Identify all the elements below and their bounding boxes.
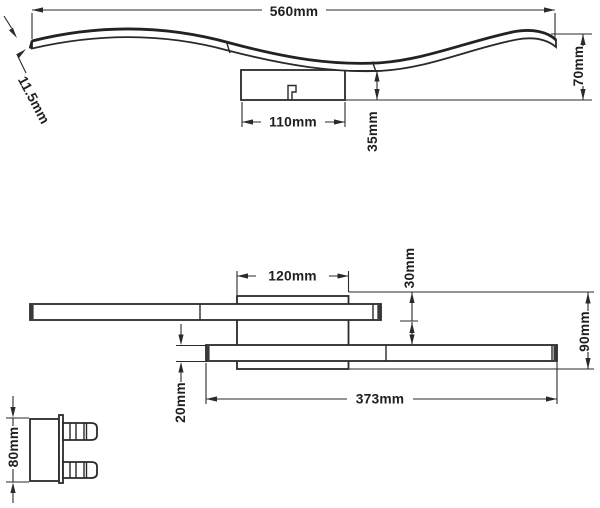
linear-front-view: 120mm 30mm 90mm	[30, 248, 594, 423]
dim-label-560mm: 560mm	[270, 4, 319, 19]
upper-bar	[30, 304, 381, 320]
dim-label-11-5mm: 11.5mm	[15, 74, 53, 127]
upper-bar-right-endcap	[377, 305, 380, 319]
bracket-body	[30, 419, 59, 481]
dim-label-35mm: 35mm	[365, 111, 380, 152]
dim-bar-thickness: 20mm	[173, 324, 207, 423]
lower-bar-right-endcap	[554, 346, 557, 360]
dim-label-80mm: 80mm	[6, 427, 21, 468]
dim-label-30mm: 30mm	[402, 248, 417, 289]
dim-canopy-width: 110mm	[242, 102, 345, 130]
technical-drawing-sheet: 560mm 11.5mm 110mm 35mm	[0, 0, 600, 508]
bracket-lower-clip	[63, 462, 97, 478]
dim-label-110mm: 110mm	[269, 115, 317, 130]
dim-front-canopy-width: 120mm	[237, 269, 349, 296]
bracket-upper-clip	[63, 423, 97, 440]
dimension-drawing: 560mm 11.5mm 110mm 35mm	[0, 0, 600, 508]
upper-bar-left-endcap	[31, 305, 34, 319]
bracket-detail-view: 80mm	[6, 396, 97, 503]
lower-bar-left-endcap	[207, 346, 210, 360]
dim-label-120mm: 120mm	[268, 269, 317, 284]
wave-profile	[32, 29, 556, 71]
dim-upper-bar-drop: 30mm	[400, 248, 418, 345]
dim-label-373mm: 373mm	[356, 392, 405, 407]
dim-label-20mm: 20mm	[173, 382, 188, 423]
dim-bracket-height: 80mm	[6, 396, 29, 503]
dim-end-thickness: 11.5mm	[4, 16, 52, 127]
dim-label-90mm: 90mm	[577, 311, 592, 352]
dim-label-70mm: 70mm	[571, 46, 586, 87]
lower-bar	[206, 345, 557, 361]
wave-side-view: 560mm 11.5mm 110mm 35mm	[4, 4, 592, 152]
dim-canopy-height: 35mm	[347, 71, 384, 152]
